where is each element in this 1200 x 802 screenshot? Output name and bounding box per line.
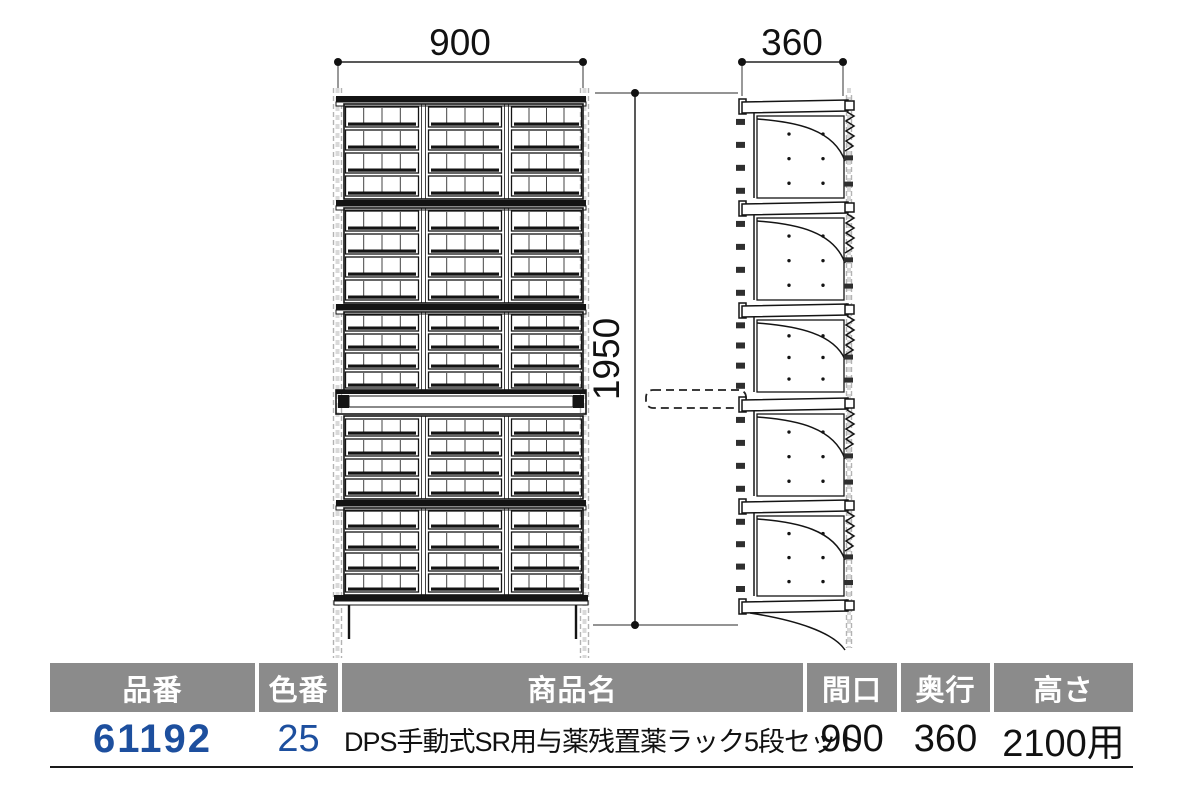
cell-width-value: 900 (807, 712, 897, 766)
col-header-hinban: 品番 (50, 663, 255, 712)
spec-table-value-row: 61192 25 DPS手動式SR用与薬残置薬ラック5段セット 900 360 … (50, 712, 1133, 768)
width-dimension-label: 900 (429, 22, 491, 63)
cell-depth-value: 360 (901, 712, 990, 766)
spec-table: 品番 色番 商品名 間口 奥行 高さ 61192 25 DPS手動式SR用与薬残… (50, 663, 1133, 768)
height-dimension: 1950 (586, 89, 738, 629)
rack-side-view (646, 88, 854, 650)
cell-product-name: DPS手動式SR用与薬残置薬ラック5段セット (342, 712, 803, 766)
col-header-maguchi: 間口 (807, 663, 897, 712)
width-dimension: 900 (334, 22, 587, 88)
col-header-iroban: 色番 (259, 663, 338, 712)
col-header-takasa: 高さ (994, 663, 1133, 712)
depth-dimension-label: 360 (761, 22, 823, 63)
rack-front-view (334, 88, 589, 658)
cell-color-number: 25 (259, 712, 338, 766)
spec-table-header-row: 品番 色番 商品名 間口 奥行 高さ (50, 663, 1133, 712)
cell-part-number: 61192 (50, 712, 255, 766)
col-header-shohinmei: 商品名 (342, 663, 803, 712)
technical-drawing: 900 360 1950 (0, 0, 1200, 660)
cell-height-value: 2100用 (994, 712, 1133, 766)
depth-dimension: 360 (738, 22, 847, 96)
col-header-okuyuki: 奥行 (901, 663, 990, 712)
height-dimension-label: 1950 (586, 318, 627, 400)
catalog-page: 900 360 1950 品番 色番 商品名 (0, 0, 1200, 802)
